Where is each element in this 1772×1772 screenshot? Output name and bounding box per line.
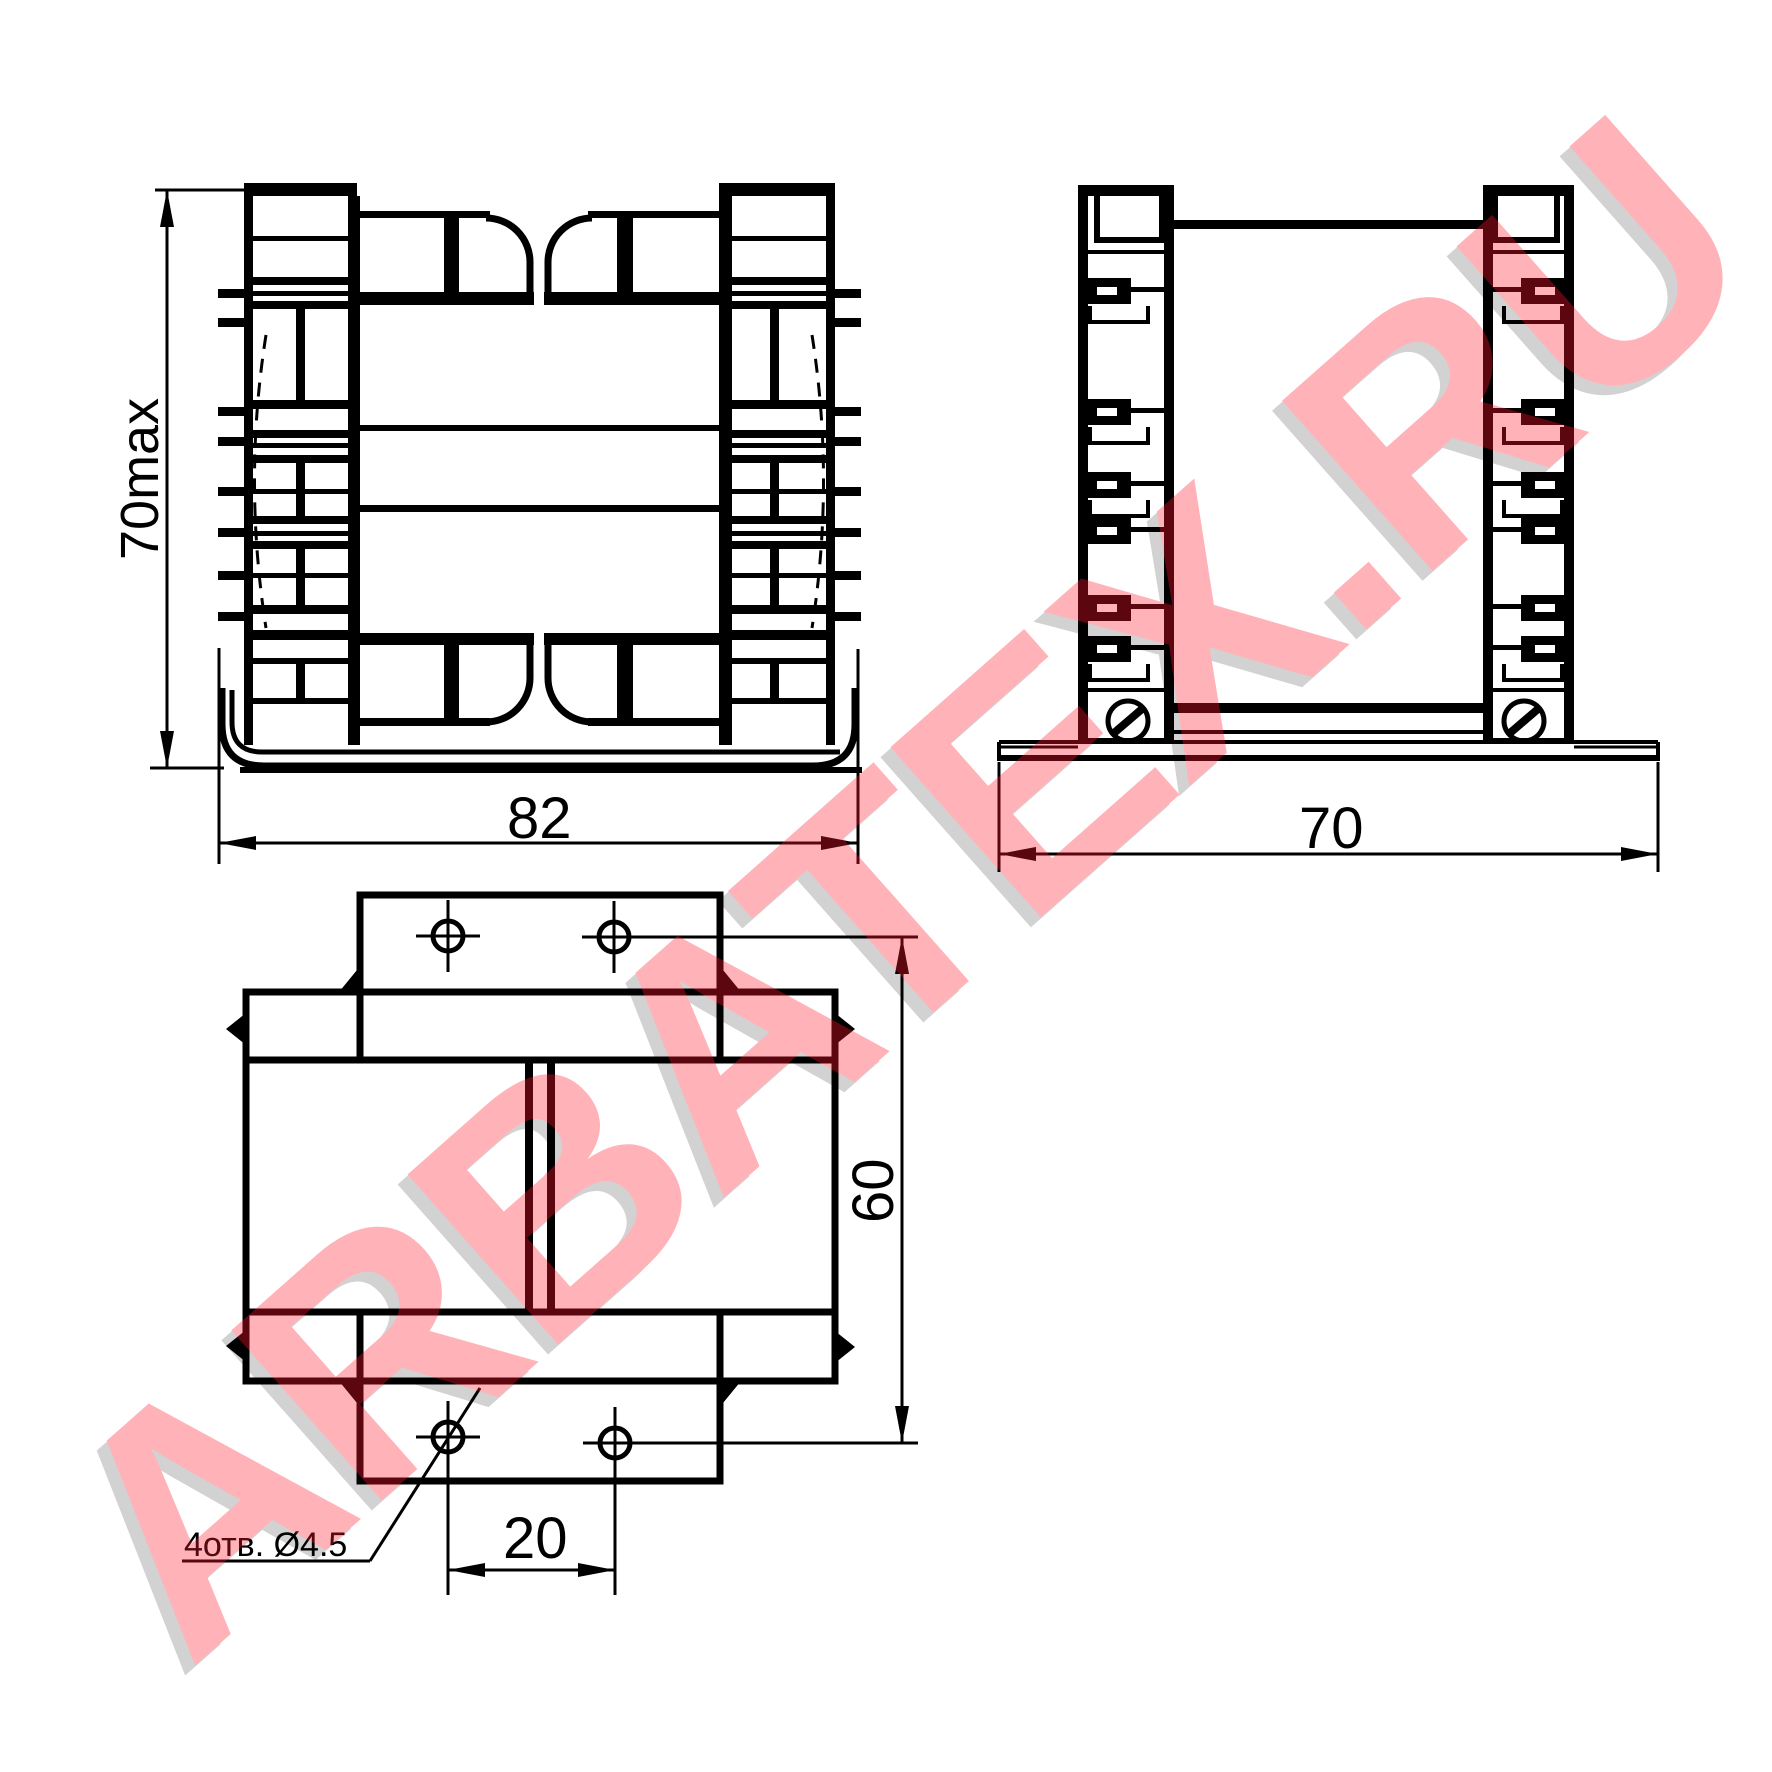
svg-text:20: 20 — [503, 1506, 568, 1571]
svg-text:82: 82 — [507, 786, 572, 851]
svg-text:70max: 70max — [110, 398, 170, 560]
svg-text:70: 70 — [1299, 796, 1364, 861]
